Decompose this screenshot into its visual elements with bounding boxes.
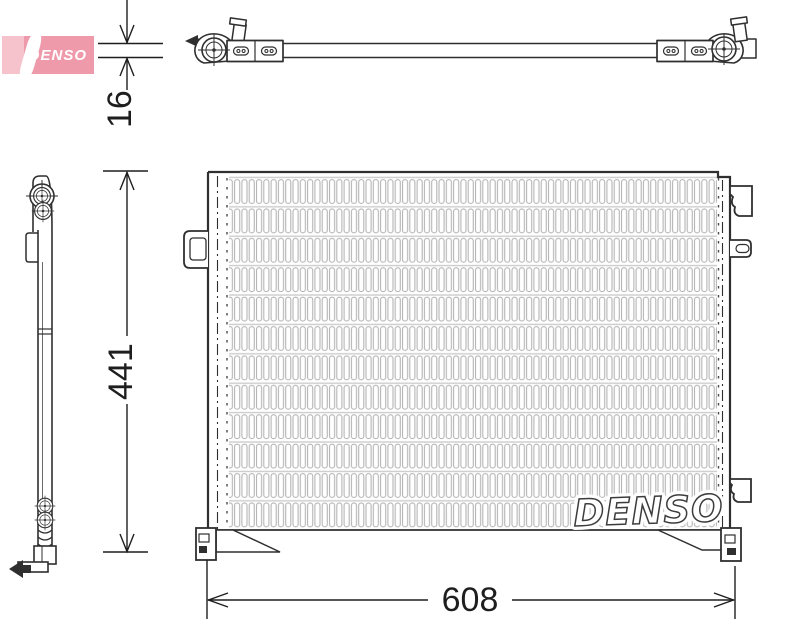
front-bottom-right-foot [658,528,741,561]
side-foot-bracket [9,546,56,578]
depth-dimension-label: 16 [101,90,139,128]
front-right-upper-bracket [730,186,752,216]
side-coil-fitting [38,530,52,547]
condenser-drawing: 16 [0,0,800,619]
side-left-bracket [26,233,38,262]
width-dimension-label: 608 [442,581,499,619]
top-view-right-fitting [657,17,756,65]
condenser-front-view: DENSO DENSO [184,172,752,561]
denso-watermark-text: DENSO [573,487,724,535]
fin-core [229,176,717,528]
dimension-height: 441 [102,171,148,552]
front-bottom-left-foot [196,528,280,560]
technical-drawing-canvas: DENSO [0,0,800,619]
condenser-side-view [9,176,58,578]
front-right-lower-bracket [730,479,751,502]
denso-watermark: DENSO DENSO [573,487,724,535]
top-view-core-bar [281,44,659,58]
dimension-width: 608 [207,560,735,619]
top-view-left-fitting [185,18,283,66]
height-dimension-label: 441 [102,343,140,400]
condenser-top-view [185,17,756,66]
front-right-tab [730,240,751,257]
front-left-tab [184,231,208,268]
dimension-depth: 16 [98,0,163,128]
